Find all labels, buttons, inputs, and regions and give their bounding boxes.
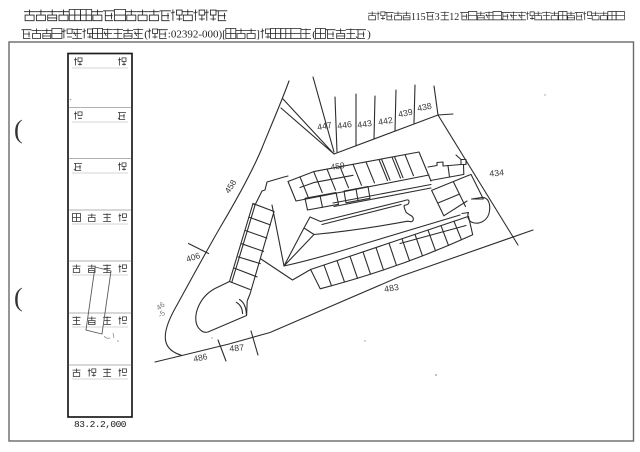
svg-text:406: 406 — [185, 250, 202, 264]
svg-text:483: 483 — [383, 282, 399, 294]
svg-text:443: 443 — [357, 118, 373, 130]
svg-text:458: 458 — [222, 178, 238, 196]
svg-text:115: 115 — [411, 12, 426, 23]
svg-text:(: ( — [14, 283, 23, 312]
svg-text:447: 447 — [316, 120, 332, 132]
svg-text:(: ( — [14, 115, 23, 144]
svg-text:438: 438 — [416, 101, 433, 114]
svg-text:446: 446 — [337, 119, 353, 131]
svg-text:487: 487 — [229, 342, 245, 353]
svg-text::02392-000)[: :02392-000)[ — [168, 29, 226, 41]
svg-text:]: ] — [256, 29, 260, 41]
svg-text:486: 486 — [192, 351, 208, 364]
svg-text:439: 439 — [397, 107, 414, 120]
svg-text:(: ( — [144, 29, 148, 41]
svg-text:-5: -5 — [156, 308, 167, 319]
svg-text:12: 12 — [449, 12, 459, 23]
svg-text:434: 434 — [489, 167, 505, 178]
svg-text:3: 3 — [435, 12, 440, 23]
svg-text:442: 442 — [377, 115, 393, 127]
svg-text:): ) — [367, 29, 371, 41]
svg-text:83.2.2,000: 83.2.2,000 — [74, 419, 127, 430]
